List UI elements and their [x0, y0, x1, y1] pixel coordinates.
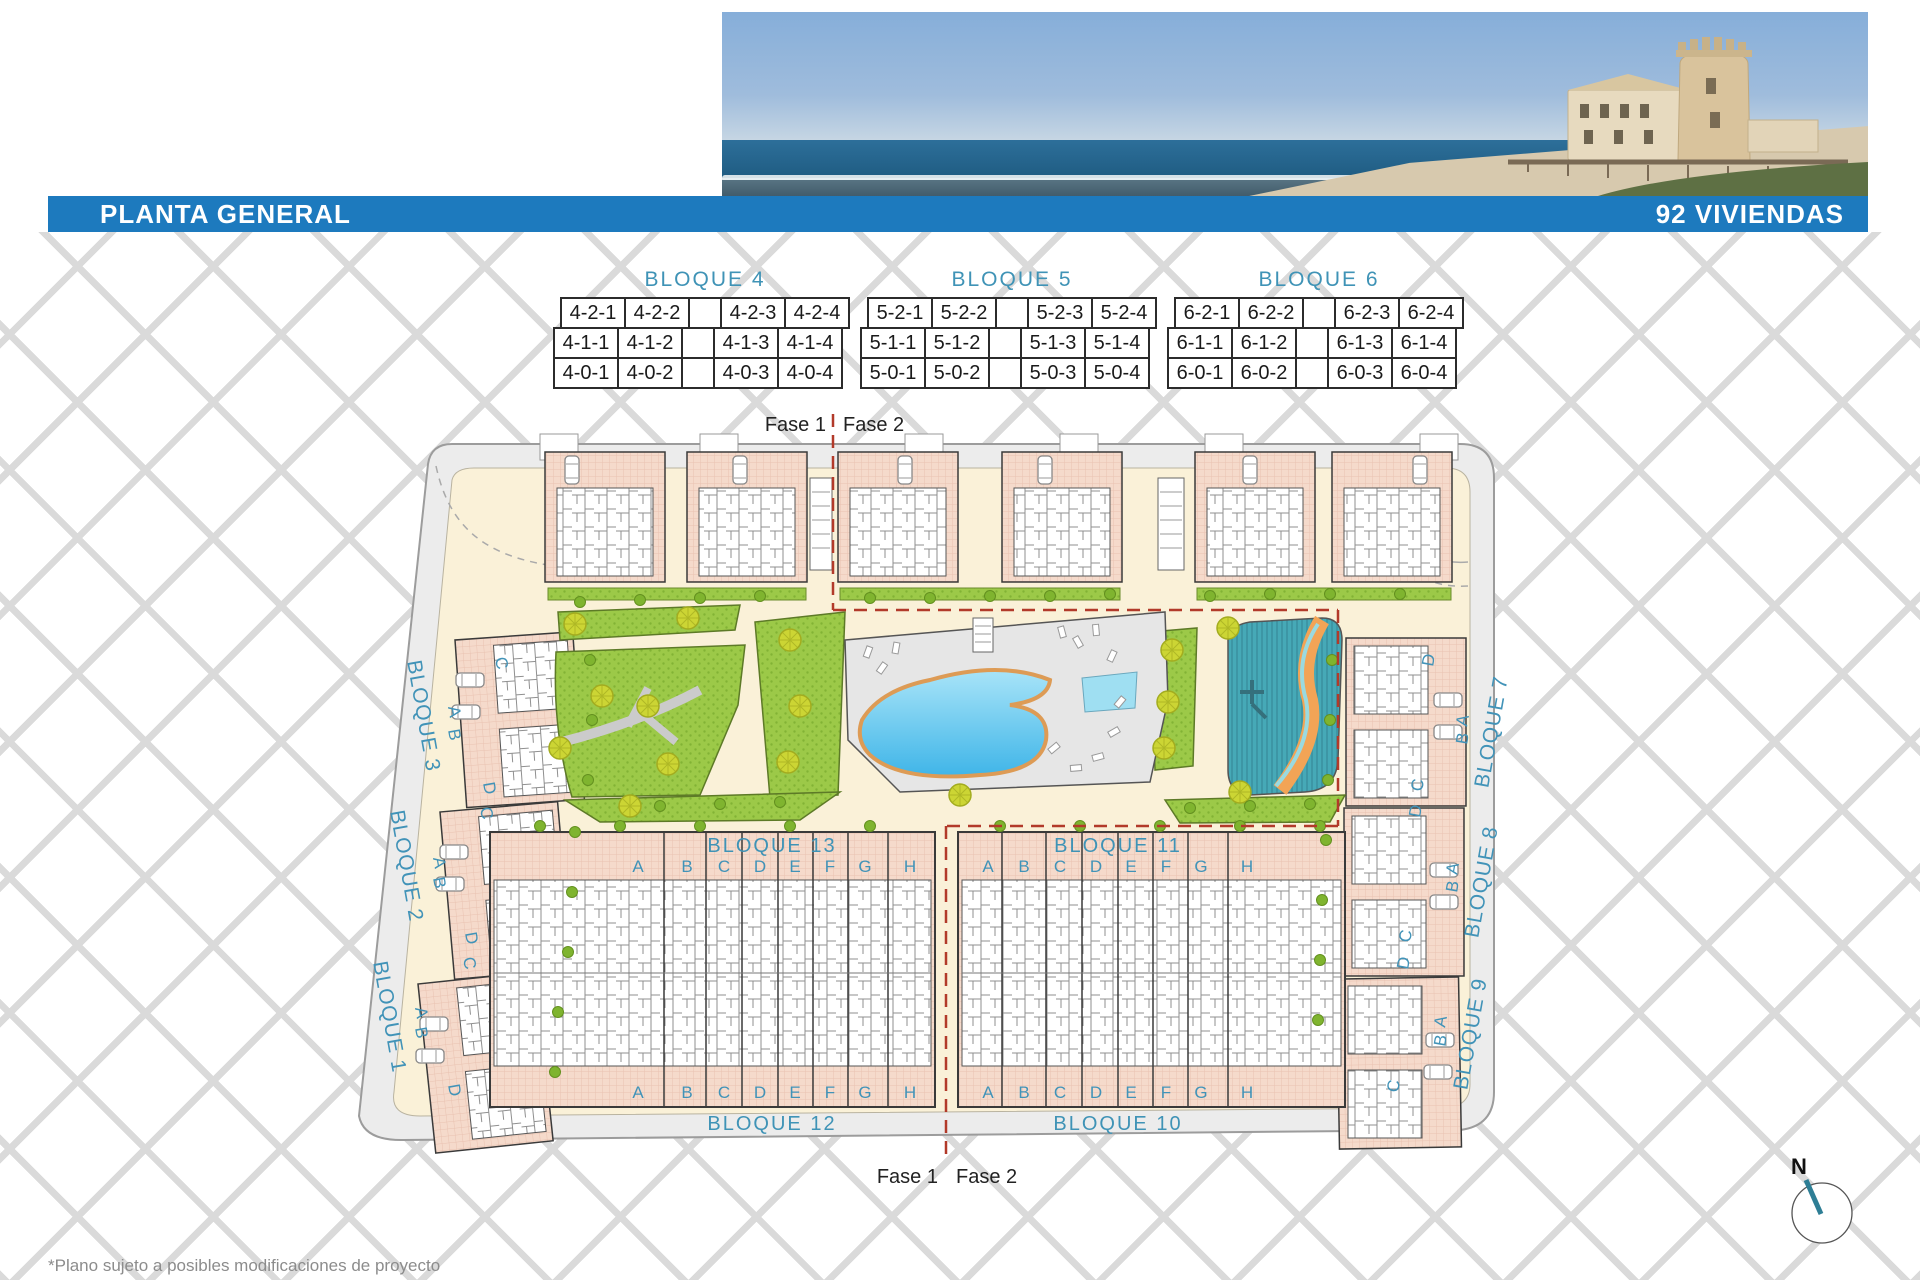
unit-cell: 6-2-3 — [1334, 297, 1400, 329]
spacer-cell — [681, 357, 715, 389]
svg-text:D: D — [754, 857, 766, 876]
castle-round-tower — [1676, 37, 1752, 160]
svg-text:G: G — [858, 857, 871, 876]
svg-text:D: D — [1090, 1083, 1102, 1102]
page-title: PLANTA GENERAL — [100, 199, 351, 230]
unit-cell: 4-1-2 — [617, 327, 683, 359]
svg-text:E: E — [789, 1083, 800, 1102]
bloque-5-title: BLOQUE 5 — [860, 268, 1164, 292]
svg-text:A: A — [632, 857, 644, 876]
beach-photo — [722, 12, 1868, 196]
svg-text:A: A — [982, 857, 994, 876]
compass: N — [1791, 1154, 1852, 1243]
compass-north-label: N — [1791, 1154, 1807, 1179]
spacer-cell — [1295, 357, 1329, 389]
top-hedges — [548, 588, 1451, 600]
dune-vegetation — [1598, 162, 1868, 196]
bottom-blocks — [490, 832, 1345, 1107]
svg-text:G: G — [858, 1083, 871, 1102]
unit-cell: 6-1-2 — [1231, 327, 1297, 359]
castle-tower-illustration — [1448, 12, 1868, 196]
svg-text:D: D — [754, 1083, 766, 1102]
svg-text:B: B — [681, 1083, 692, 1102]
unit-cell: 5-2-1 — [867, 297, 933, 329]
svg-text:C: C — [718, 857, 730, 876]
unit-cell: 5-2-4 — [1091, 297, 1157, 329]
spacer-cell — [688, 297, 722, 329]
castle-side-wall — [1748, 120, 1818, 152]
svg-text:E: E — [789, 857, 800, 876]
svg-text:E: E — [1125, 857, 1136, 876]
unit-cell: 5-1-1 — [860, 327, 926, 359]
svg-text:G: G — [1194, 1083, 1207, 1102]
svg-text:F: F — [825, 857, 835, 876]
svg-text:A: A — [632, 1083, 644, 1102]
svg-text:B: B — [1018, 1083, 1029, 1102]
bloque-13-label: BLOQUE 13 — [707, 835, 836, 857]
svg-text:F: F — [1161, 1083, 1171, 1102]
unit-cell: 5-1-4 — [1084, 327, 1150, 359]
svg-text:A: A — [982, 1083, 994, 1102]
unit-cell: 4-1-3 — [713, 327, 779, 359]
right-blocks — [1337, 638, 1466, 1149]
svg-text:C: C — [1054, 1083, 1066, 1102]
brochure-page: PLANTA GENERAL 92 VIVIENDAS BLOQUE 4 4-2… — [0, 0, 1920, 1280]
unit-cell: 5-0-3 — [1020, 357, 1086, 389]
bloque-11-label: BLOQUE 11 — [1054, 835, 1182, 857]
spacer-cell — [1295, 327, 1329, 359]
svg-text:H: H — [1241, 857, 1253, 876]
svg-text:E: E — [1125, 1083, 1136, 1102]
unit-cell: 6-1-1 — [1167, 327, 1233, 359]
unit-cell: 5-0-1 — [860, 357, 926, 389]
unit-cell: 6-0-4 — [1391, 357, 1457, 389]
disclaimer-footnote: *Plano sujeto a posibles modificaciones … — [48, 1256, 440, 1276]
small-pool — [1082, 672, 1137, 712]
unit-cell: 4-2-2 — [624, 297, 690, 329]
unit-cell: 5-2-2 — [931, 297, 997, 329]
spacer-cell — [988, 357, 1022, 389]
unit-cell: 6-2-4 — [1398, 297, 1464, 329]
unit-cell: 5-0-2 — [924, 357, 990, 389]
unit-cell: 6-2-2 — [1238, 297, 1304, 329]
unit-cell: 4-1-4 — [777, 327, 843, 359]
castle-roof — [1568, 74, 1688, 90]
unit-cell: 6-1-3 — [1327, 327, 1393, 359]
svg-text:D: D — [1090, 857, 1102, 876]
bloque-10-label: BLOQUE 10 — [1053, 1113, 1182, 1135]
unit-cell: 6-0-3 — [1327, 357, 1393, 389]
unit-cell: 4-1-1 — [553, 327, 619, 359]
bloque-4-title: BLOQUE 4 — [553, 268, 857, 292]
unit-cell: 4-0-3 — [713, 357, 779, 389]
unit-cell: 4-0-4 — [777, 357, 843, 389]
unit-cell: 5-2-3 — [1027, 297, 1093, 329]
bloque-6-legend: BLOQUE 6 6-2-1 6-2-2 6-2-3 6-2-4 6-1-1 6… — [1167, 268, 1471, 389]
title-bar: PLANTA GENERAL 92 VIVIENDAS — [48, 196, 1868, 232]
fase2-label-bottom: Fase 2 — [956, 1166, 1017, 1188]
fase2-label-top: Fase 2 — [843, 414, 904, 436]
unit-cell: 4-2-3 — [720, 297, 786, 329]
svg-text:H: H — [1241, 1083, 1253, 1102]
unit-cell: 5-1-2 — [924, 327, 990, 359]
spacer-cell — [1302, 297, 1336, 329]
spacer-cell — [681, 327, 715, 359]
unit-cell: 4-2-4 — [784, 297, 850, 329]
units-count: 92 VIVIENDAS — [1656, 199, 1844, 230]
svg-text:B: B — [681, 857, 692, 876]
svg-text:F: F — [1161, 857, 1171, 876]
unit-cell: 6-0-1 — [1167, 357, 1233, 389]
castle-main-building — [1568, 90, 1688, 160]
deck-stairs — [973, 618, 993, 652]
svg-text:B: B — [1018, 857, 1029, 876]
unit-cell: 6-1-4 — [1391, 327, 1457, 359]
unit-cell: 4-0-1 — [553, 357, 619, 389]
svg-text:C: C — [1054, 857, 1066, 876]
unit-cell: 6-2-1 — [1174, 297, 1240, 329]
svg-text:C: C — [718, 1083, 730, 1102]
fase1-label-top: Fase 1 — [765, 414, 826, 436]
unit-cell: 4-2-1 — [560, 297, 626, 329]
spacer-cell — [995, 297, 1029, 329]
splash-pad — [1228, 618, 1342, 795]
unit-cell: 5-1-3 — [1020, 327, 1086, 359]
svg-text:G: G — [1194, 857, 1207, 876]
bloque-12-label: BLOQUE 12 — [707, 1113, 836, 1135]
svg-text:H: H — [904, 857, 916, 876]
svg-text:H: H — [904, 1083, 916, 1102]
unit-cell: 4-0-2 — [617, 357, 683, 389]
fase1-label-bottom: Fase 1 — [877, 1166, 938, 1188]
unit-cell: 5-0-4 — [1084, 357, 1150, 389]
bloque-6-title: BLOQUE 6 — [1167, 268, 1471, 292]
unit-cell: 6-0-2 — [1231, 357, 1297, 389]
svg-text:F: F — [825, 1083, 835, 1102]
spacer-cell — [988, 327, 1022, 359]
bloque-4-legend: BLOQUE 4 4-2-1 4-2-2 4-2-3 4-2-4 4-1-1 4… — [553, 268, 857, 389]
pool-area — [845, 612, 1168, 792]
bloque-5-legend: BLOQUE 5 5-2-1 5-2-2 5-2-3 5-2-4 5-1-1 5… — [860, 268, 1164, 389]
